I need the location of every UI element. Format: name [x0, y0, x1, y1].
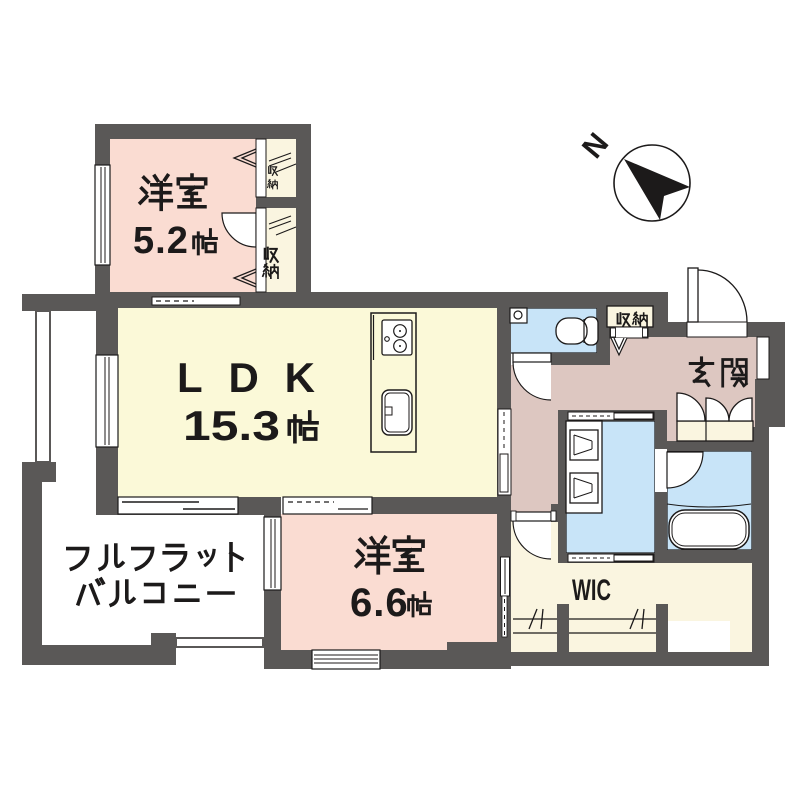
- svg-text:WIC: WIC: [572, 574, 611, 607]
- svg-text:LDK: LDK: [177, 354, 315, 401]
- svg-text:15.3: 15.3: [183, 402, 280, 449]
- svg-text:5.2: 5.2: [133, 220, 189, 262]
- svg-text:6.6: 6.6: [350, 581, 409, 625]
